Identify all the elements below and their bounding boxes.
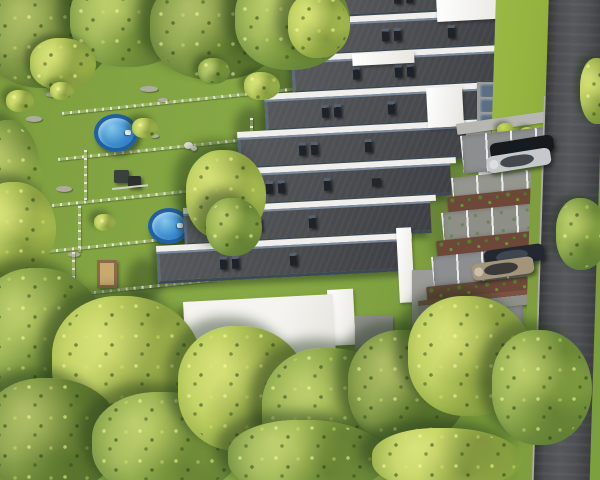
swimming-pool-upper [94,114,138,152]
white-dog [191,146,197,151]
roof-vent [232,256,240,269]
shrub [132,118,158,138]
playground-panel [114,170,129,183]
roof-vent [365,139,373,152]
white-gable [426,86,464,128]
sandbox [97,260,117,288]
roof-vent [407,64,415,77]
roof-vent [388,101,396,114]
tree-canopy [556,198,600,270]
tree-canopy [492,330,592,445]
shrub [198,58,230,84]
roof-vent [382,28,390,41]
aerial-estate-render [0,0,600,480]
roof-vent [311,142,319,155]
roof-vent [278,180,286,193]
roof-vent [353,66,361,79]
shrub [50,82,74,100]
roof-vent [394,28,402,41]
playground-frame [112,184,148,190]
rock [140,86,158,92]
garden-fence [78,206,81,252]
tree-canopy [0,182,56,274]
roof-vent [220,256,228,269]
roof-vent [324,178,332,191]
roof-vent [322,105,330,118]
roof-vent [406,0,414,3]
shrub [244,72,280,100]
tree-canopy [206,198,262,256]
roof-vent [372,178,381,186]
roof-vent [309,215,317,228]
shrub [6,90,34,112]
roof-vent [448,25,456,38]
rock [56,186,72,192]
roof-vent [299,142,307,155]
shrub [94,214,116,231]
rock [26,116,42,122]
roof-vent [395,64,403,77]
roof-vent [290,253,298,266]
roof-vent [266,181,274,194]
roof-vent [334,104,342,117]
tree-canopy [372,428,522,480]
roof-vent [394,0,402,4]
garden-fence [84,150,87,200]
